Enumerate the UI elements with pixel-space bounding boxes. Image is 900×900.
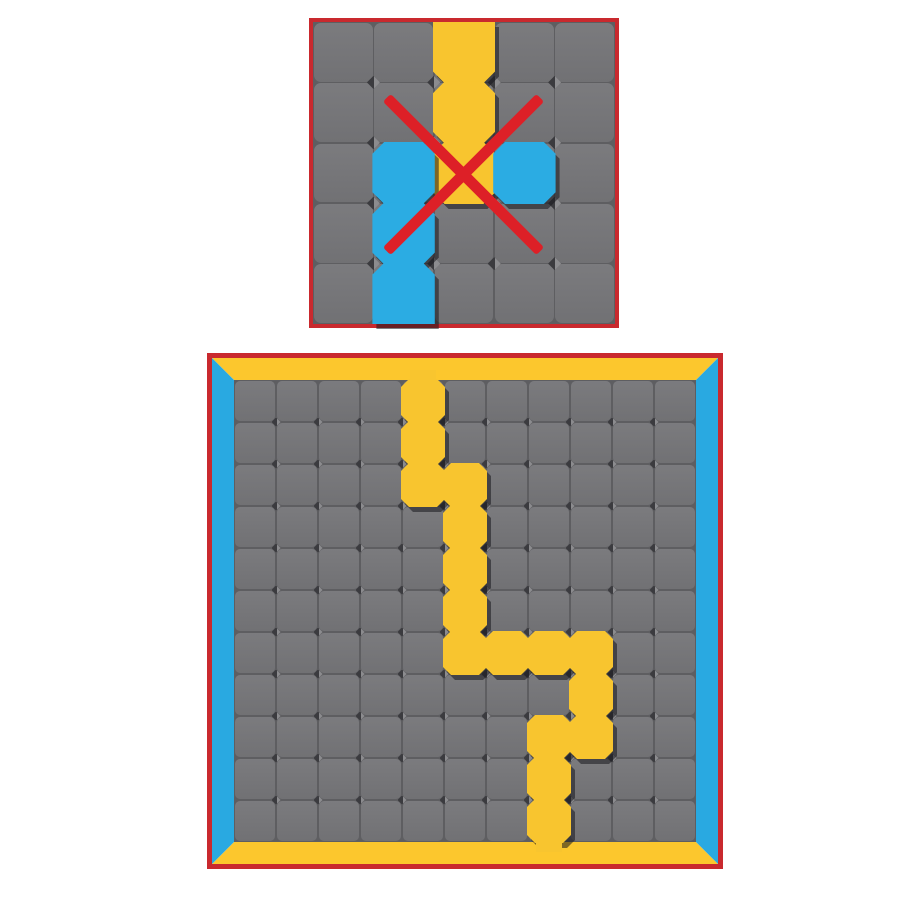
grid-cell[interactable] (403, 717, 443, 757)
yellow-path-cell[interactable] (443, 547, 487, 591)
grid-cell[interactable] (319, 759, 359, 799)
grid-cell[interactable] (529, 381, 569, 421)
grid-cell[interactable] (613, 381, 653, 421)
grid-cell[interactable] (487, 801, 527, 841)
grid-cell[interactable] (529, 591, 569, 631)
grid-cell[interactable] (319, 423, 359, 463)
grid-cell (314, 264, 373, 323)
grid-cell[interactable] (319, 801, 359, 841)
yellow-path-cell[interactable] (443, 463, 487, 507)
grid-cell[interactable] (655, 423, 695, 463)
grid-cell[interactable] (613, 423, 653, 463)
grid-cell[interactable] (319, 717, 359, 757)
blue-path-cell (372, 263, 434, 324)
grid-cell[interactable] (277, 759, 317, 799)
grid-cell[interactable] (655, 801, 695, 841)
grid-cell[interactable] (235, 801, 275, 841)
game-board (207, 353, 723, 869)
grid-cell[interactable] (613, 759, 653, 799)
grid-cell[interactable] (361, 423, 401, 463)
grid-cell (555, 144, 614, 203)
yellow-path-cell[interactable] (527, 799, 571, 843)
grid-cell[interactable] (361, 381, 401, 421)
grid-cell[interactable] (445, 675, 485, 715)
grid-cell[interactable] (613, 675, 653, 715)
grid-cell[interactable] (613, 633, 653, 673)
grid-cell[interactable] (361, 591, 401, 631)
grid-cell[interactable] (361, 633, 401, 673)
grid-cell[interactable] (487, 717, 527, 757)
tutorial-board (309, 18, 619, 328)
grid-cell[interactable] (361, 465, 401, 505)
yellow-path-cell (433, 22, 495, 83)
grid-cell[interactable] (445, 423, 485, 463)
grid-cell[interactable] (571, 801, 611, 841)
grid-cell[interactable] (235, 423, 275, 463)
grid-cell[interactable] (571, 465, 611, 505)
grid-cell[interactable] (571, 381, 611, 421)
grid-cell[interactable] (613, 507, 653, 547)
grid-cell (555, 83, 614, 142)
grid-cell[interactable] (319, 465, 359, 505)
grid-cell[interactable] (235, 591, 275, 631)
grid-cell[interactable] (613, 549, 653, 589)
grid-cell[interactable] (571, 507, 611, 547)
yellow-path-cell[interactable] (485, 631, 529, 675)
grid-cell[interactable] (445, 381, 485, 421)
grid-cell[interactable] (529, 507, 569, 547)
yellow-path-cell[interactable] (569, 715, 613, 759)
yellow-path-cell[interactable] (569, 673, 613, 717)
board-frame-bottom (212, 842, 718, 864)
grid-cell[interactable] (403, 675, 443, 715)
grid-cell (314, 23, 373, 82)
yellow-path-cell[interactable] (401, 463, 445, 507)
grid-cell[interactable] (235, 717, 275, 757)
grid-cell (435, 204, 494, 263)
grid-cell[interactable] (655, 675, 695, 715)
grid-cell[interactable] (655, 549, 695, 589)
grid-cell (435, 264, 494, 323)
grid-cell[interactable] (403, 591, 443, 631)
grid-cell[interactable] (277, 423, 317, 463)
grid-cell[interactable] (655, 591, 695, 631)
grid-cell[interactable] (445, 801, 485, 841)
grid-cell[interactable] (361, 801, 401, 841)
grid-cell[interactable] (655, 507, 695, 547)
yellow-path-cell[interactable] (569, 631, 613, 675)
yellow-path-cell[interactable] (401, 379, 445, 423)
grid-cell[interactable] (319, 549, 359, 589)
grid-cell[interactable] (613, 801, 653, 841)
grid-cell[interactable] (529, 423, 569, 463)
grid-cell[interactable] (277, 717, 317, 757)
grid-cell[interactable] (277, 507, 317, 547)
path-exit-tab (536, 839, 562, 852)
grid-cell[interactable] (487, 675, 527, 715)
grid-cell[interactable] (361, 675, 401, 715)
yellow-path-cell[interactable] (443, 505, 487, 549)
grid-cell[interactable] (487, 465, 527, 505)
grid-cell[interactable] (319, 381, 359, 421)
grid-cell[interactable] (613, 465, 653, 505)
grid-cell[interactable] (235, 675, 275, 715)
grid-cell[interactable] (445, 759, 485, 799)
path-entry-tab (410, 370, 436, 383)
yellow-path-cell[interactable] (401, 421, 445, 465)
grid-cell[interactable] (529, 675, 569, 715)
grid-cell (495, 264, 554, 323)
grid-cell[interactable] (277, 381, 317, 421)
grid-cell[interactable] (235, 549, 275, 589)
grid-cell[interactable] (655, 465, 695, 505)
grid-cell[interactable] (235, 759, 275, 799)
grid-cell (314, 204, 373, 263)
grid-cell[interactable] (235, 381, 275, 421)
yellow-path-cell[interactable] (527, 631, 571, 675)
grid-cell[interactable] (403, 801, 443, 841)
yellow-path-cell[interactable] (443, 589, 487, 633)
board-grid (234, 380, 696, 842)
grid-cell[interactable] (571, 549, 611, 589)
grid-cell[interactable] (613, 591, 653, 631)
grid-cell (555, 264, 614, 323)
grid-cell[interactable] (361, 717, 401, 757)
grid-cell[interactable] (277, 591, 317, 631)
grid-cell[interactable] (571, 591, 611, 631)
blue-path-cell (372, 142, 434, 204)
grid-cell[interactable] (655, 381, 695, 421)
grid-cell[interactable] (235, 465, 275, 505)
grid-cell (374, 23, 433, 82)
grid-cell[interactable] (571, 759, 611, 799)
grid-cell[interactable] (655, 717, 695, 757)
yellow-path-cell[interactable] (443, 631, 487, 675)
grid-cell[interactable] (319, 675, 359, 715)
grid-cell (314, 144, 373, 203)
grid-cell[interactable] (487, 381, 527, 421)
yellow-path-cell[interactable] (527, 715, 571, 759)
grid-cell[interactable] (319, 507, 359, 547)
grid-cell (555, 204, 614, 263)
grid-cell[interactable] (361, 549, 401, 589)
grid-cell[interactable] (361, 759, 401, 799)
grid-cell[interactable] (655, 633, 695, 673)
grid-cell[interactable] (277, 549, 317, 589)
grid-cell[interactable] (655, 759, 695, 799)
grid-cell[interactable] (361, 507, 401, 547)
grid-cell[interactable] (319, 591, 359, 631)
grid-cell[interactable] (529, 465, 569, 505)
grid-cell[interactable] (403, 549, 443, 589)
grid-cell[interactable] (613, 717, 653, 757)
yellow-path-cell (433, 81, 495, 143)
grid-cell[interactable] (487, 759, 527, 799)
grid-cell (495, 23, 554, 82)
grid-cell[interactable] (487, 423, 527, 463)
grid-cell[interactable] (403, 759, 443, 799)
grid-cell[interactable] (487, 549, 527, 589)
grid-cell[interactable] (235, 633, 275, 673)
yellow-path-cell[interactable] (527, 757, 571, 801)
grid-cell[interactable] (445, 717, 485, 757)
grid-cell[interactable] (235, 507, 275, 547)
grid-cell[interactable] (487, 591, 527, 631)
grid-cell (314, 83, 373, 142)
grid-cell[interactable] (277, 675, 317, 715)
grid-cell (555, 23, 614, 82)
grid-cell[interactable] (277, 633, 317, 673)
grid-cell[interactable] (277, 465, 317, 505)
grid-cell[interactable] (403, 633, 443, 673)
blue-path-cell (493, 142, 555, 204)
grid-cell[interactable] (571, 423, 611, 463)
grid-cell[interactable] (487, 507, 527, 547)
page-background: { "meta": {"width": 900, "height": 900, … (0, 0, 900, 900)
grid-cell[interactable] (277, 801, 317, 841)
board-frame-right (696, 358, 718, 864)
grid-cell[interactable] (529, 549, 569, 589)
board-frame-top (212, 358, 718, 380)
grid-cell[interactable] (319, 633, 359, 673)
board-frame-left (212, 358, 234, 864)
grid-cell[interactable] (403, 507, 443, 547)
